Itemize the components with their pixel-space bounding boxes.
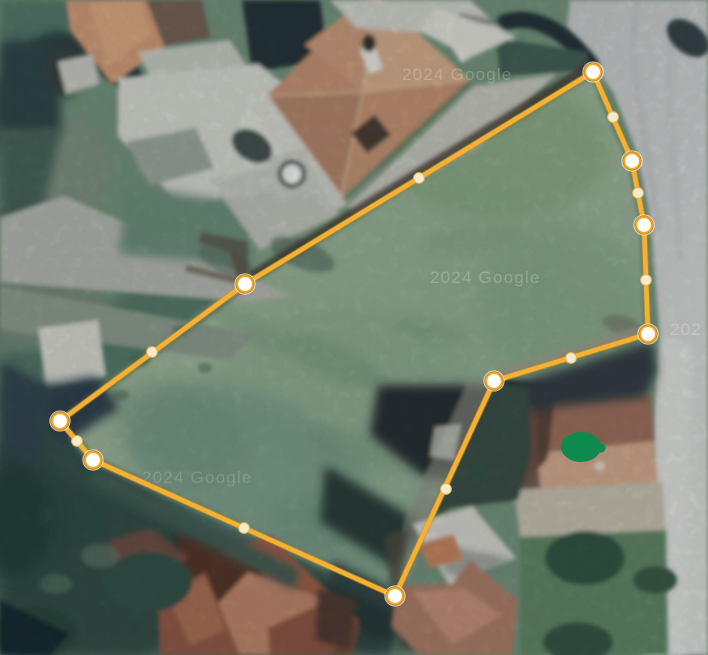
svg-text:202: 202 <box>670 320 702 339</box>
svg-text:2024 Google: 2024 Google <box>142 468 253 487</box>
svg-text:2024 Google: 2024 Google <box>430 268 541 287</box>
svg-text:2024 Google: 2024 Google <box>402 65 513 84</box>
